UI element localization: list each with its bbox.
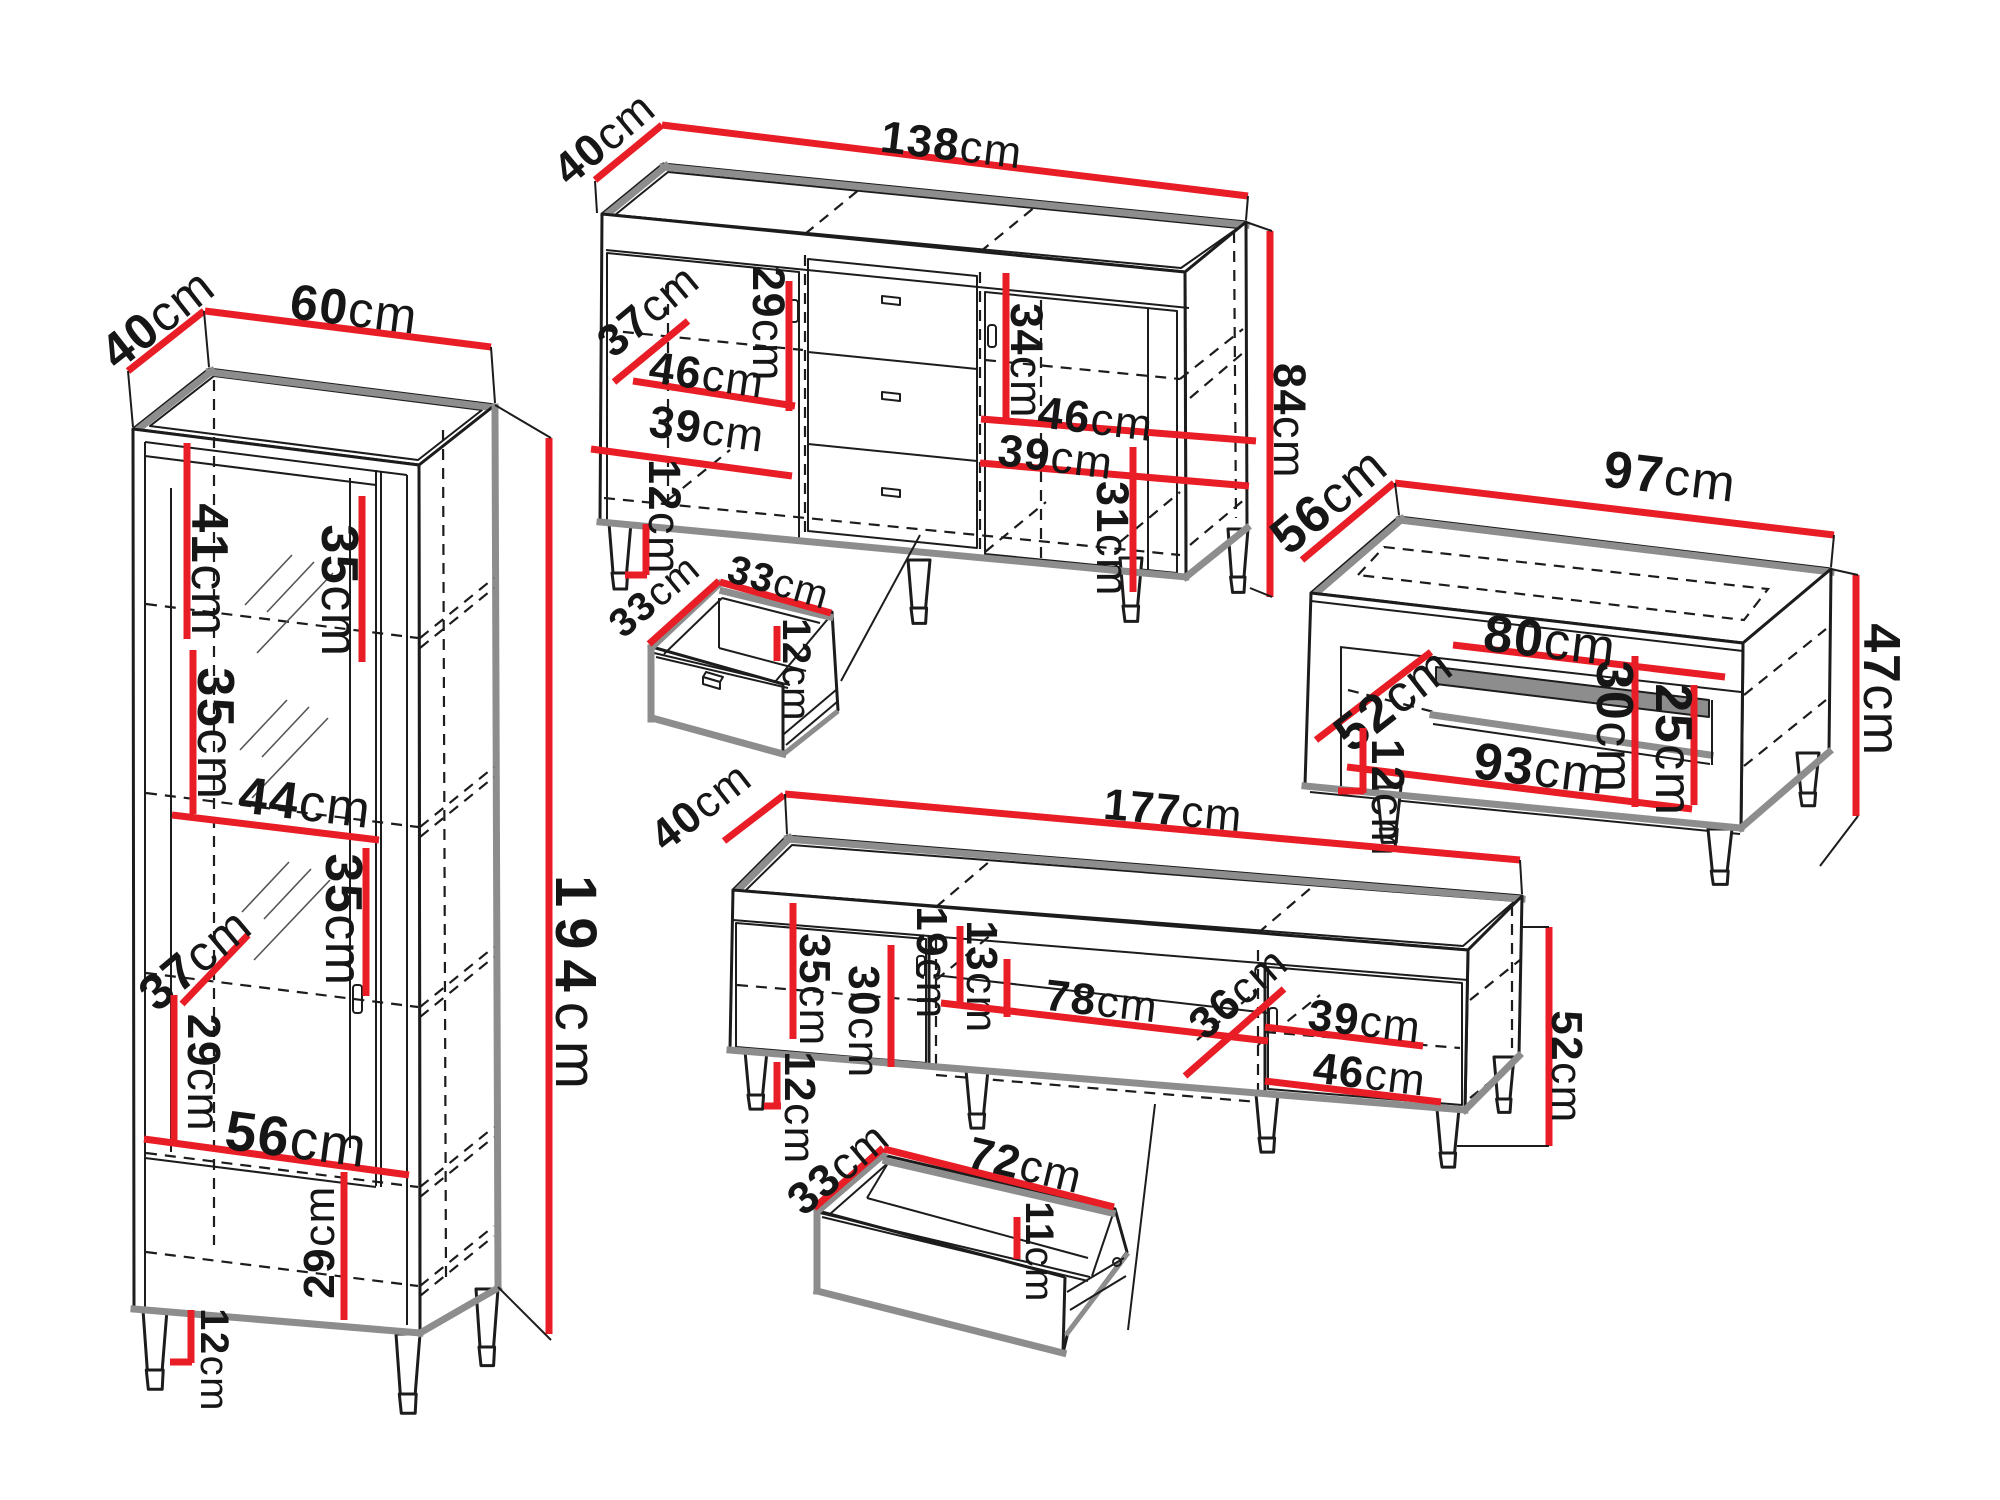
svg-text:35cm: 35cm — [790, 933, 839, 1047]
svg-text:12cm: 12cm — [774, 618, 818, 722]
svg-text:25cm: 25cm — [1644, 683, 1702, 816]
svg-text:31cm: 31cm — [1087, 481, 1138, 597]
svg-text:29cm: 29cm — [295, 1185, 344, 1299]
svg-text:35cm: 35cm — [310, 524, 368, 657]
svg-text:29cm: 29cm — [743, 266, 794, 382]
svg-text:47cm: 47cm — [1852, 623, 1910, 756]
svg-text:13cm: 13cm — [957, 920, 1006, 1034]
svg-text:52cm: 52cm — [1542, 1010, 1591, 1124]
svg-text:41cm: 41cm — [180, 503, 238, 636]
svg-text:30cm: 30cm — [839, 965, 888, 1079]
svg-text:12cm: 12cm — [775, 1051, 824, 1165]
svg-text:12cm: 12cm — [192, 1308, 236, 1412]
svg-text:194cm: 194cm — [543, 875, 608, 1099]
svg-text:11cm: 11cm — [1017, 1201, 1061, 1303]
svg-text:35cm: 35cm — [186, 667, 244, 800]
svg-text:30cm: 30cm — [1585, 660, 1643, 793]
svg-text:84cm: 84cm — [1264, 363, 1315, 479]
svg-text:12cm: 12cm — [1362, 739, 1414, 858]
svg-text:35cm: 35cm — [314, 853, 372, 986]
svg-text:29cm: 29cm — [178, 1014, 230, 1133]
